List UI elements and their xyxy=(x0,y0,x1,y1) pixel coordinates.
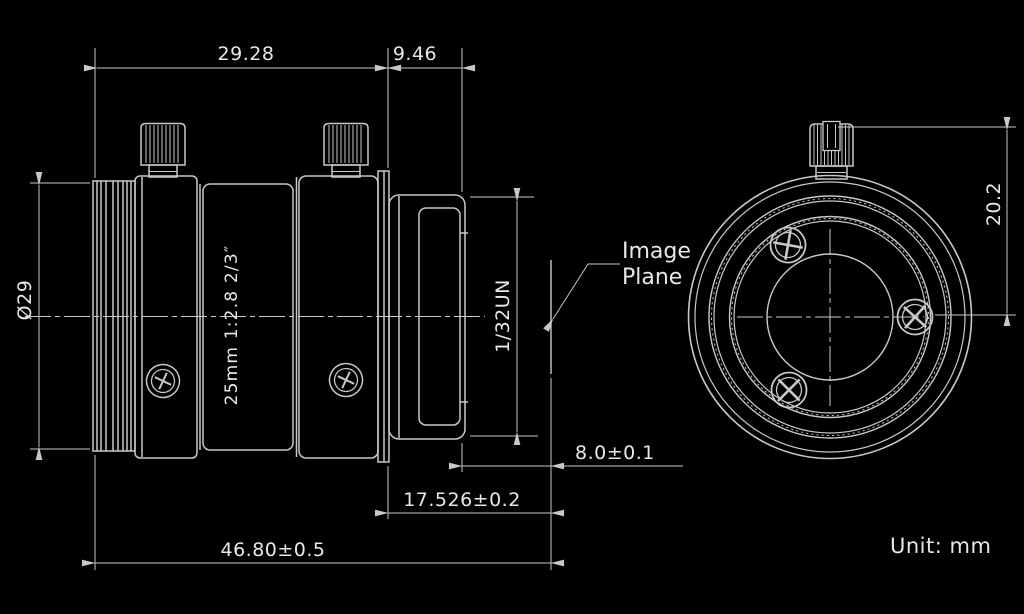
svg-text:17.526±0.2: 17.526±0.2 xyxy=(403,489,521,511)
unit-note: Unit: mm xyxy=(890,534,991,558)
image-plane-label-line2: Plane xyxy=(622,265,682,290)
dim-knob-height: 20.2 xyxy=(838,127,1016,315)
svg-text:20.2: 20.2 xyxy=(983,182,1005,226)
svg-text:Ø29: Ø29 xyxy=(14,280,36,321)
side-view: 25mm 1:2.8 2/3″ xyxy=(14,43,691,570)
dim-mount-length: 9.46 xyxy=(388,43,462,192)
dim-body-length: 29.28 xyxy=(95,43,388,178)
knurl-hatch xyxy=(146,125,178,163)
lock-knob-left xyxy=(141,124,185,178)
lens-technical-drawing: 25mm 1:2.8 2/3″ xyxy=(0,0,1024,614)
set-screw-left xyxy=(141,359,185,403)
svg-text:1/32UN: 1/32UN xyxy=(492,279,514,353)
front-lock-knob xyxy=(810,122,853,180)
front-crosshair xyxy=(737,229,924,406)
svg-text:9.46: 9.46 xyxy=(393,43,437,65)
mount-screw-right xyxy=(890,292,939,341)
knob-slot xyxy=(823,122,840,151)
image-plane-label-line1: Image xyxy=(622,239,691,264)
image-plane-leader: Image Plane xyxy=(553,239,691,319)
svg-text:29.28: 29.28 xyxy=(218,43,275,65)
front-view: 20.2 xyxy=(689,122,1017,459)
dim-overall-length: 46.80±0.5 xyxy=(95,378,551,570)
set-screw-right xyxy=(324,358,368,402)
drawing-canvas: 25mm 1:2.8 2/3″ xyxy=(0,0,1024,614)
lock-knob-right xyxy=(324,124,368,178)
svg-text:8.0±0.1: 8.0±0.1 xyxy=(575,442,655,464)
svg-text:46.80±0.5: 46.80±0.5 xyxy=(220,539,325,561)
lens-marking-text: 25mm 1:2.8 2/3″ xyxy=(222,245,242,406)
mount-screw-bottom xyxy=(764,365,813,414)
dim-flange-focal-distance: 17.526±0.2 xyxy=(388,466,551,519)
dim-mount-thread: 1/32UN xyxy=(470,197,538,436)
dim-rear-to-image-plane: 8.0±0.1 xyxy=(462,442,683,472)
knurl-hatch xyxy=(329,125,361,163)
